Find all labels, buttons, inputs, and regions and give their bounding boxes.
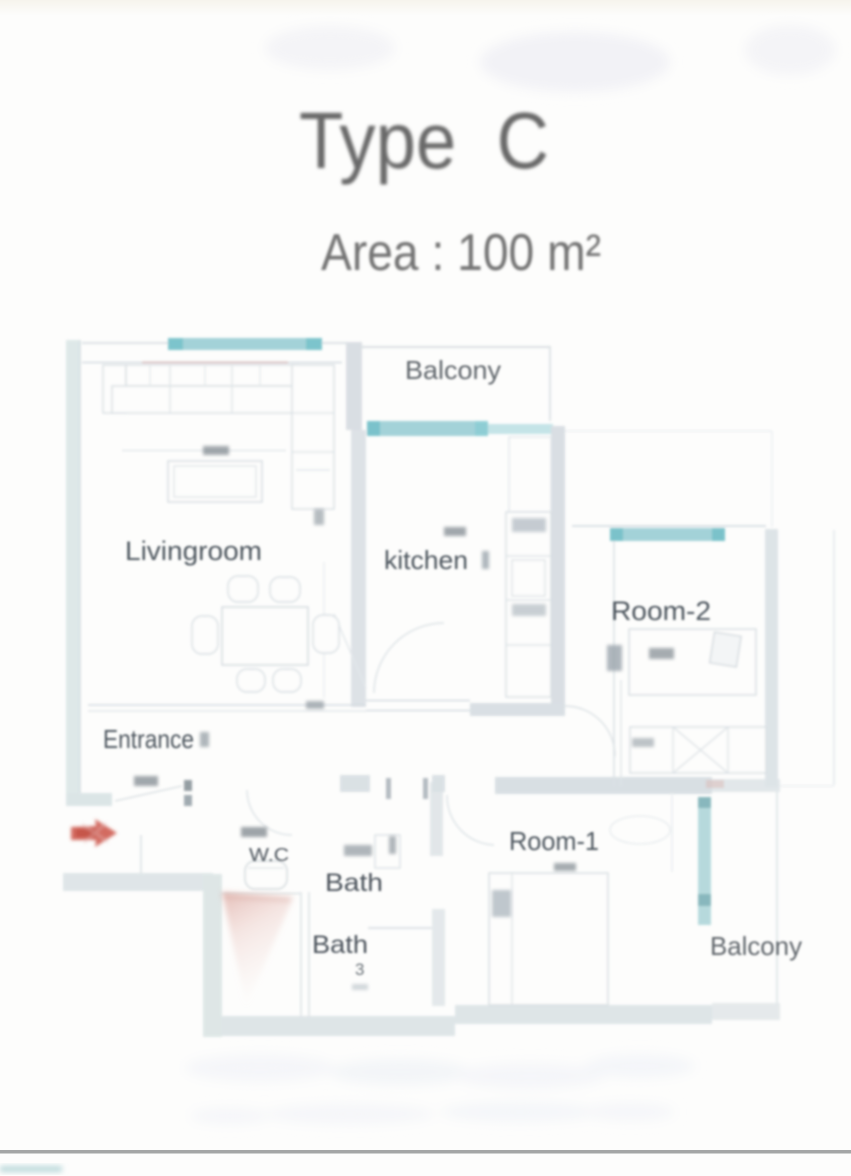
svg-text:W.C: W.C [249, 845, 289, 865]
svg-text:Livingroom: Livingroom [125, 536, 262, 566]
svg-text:Entrance: Entrance [103, 724, 194, 754]
svg-text:3: 3 [355, 960, 364, 979]
svg-text:Balcony: Balcony [405, 355, 501, 385]
svg-text:Type C: Type C [299, 96, 549, 185]
svg-text:Balcony: Balcony [710, 931, 802, 961]
svg-text:Room-1: Room-1 [509, 826, 599, 856]
svg-text:Bath: Bath [325, 869, 383, 897]
svg-text:Room-2: Room-2 [611, 596, 711, 626]
svg-text:Area : 100 m²: Area : 100 m² [321, 224, 601, 282]
svg-text:kitchen: kitchen [384, 545, 468, 575]
svg-text:Bath: Bath [312, 931, 368, 959]
